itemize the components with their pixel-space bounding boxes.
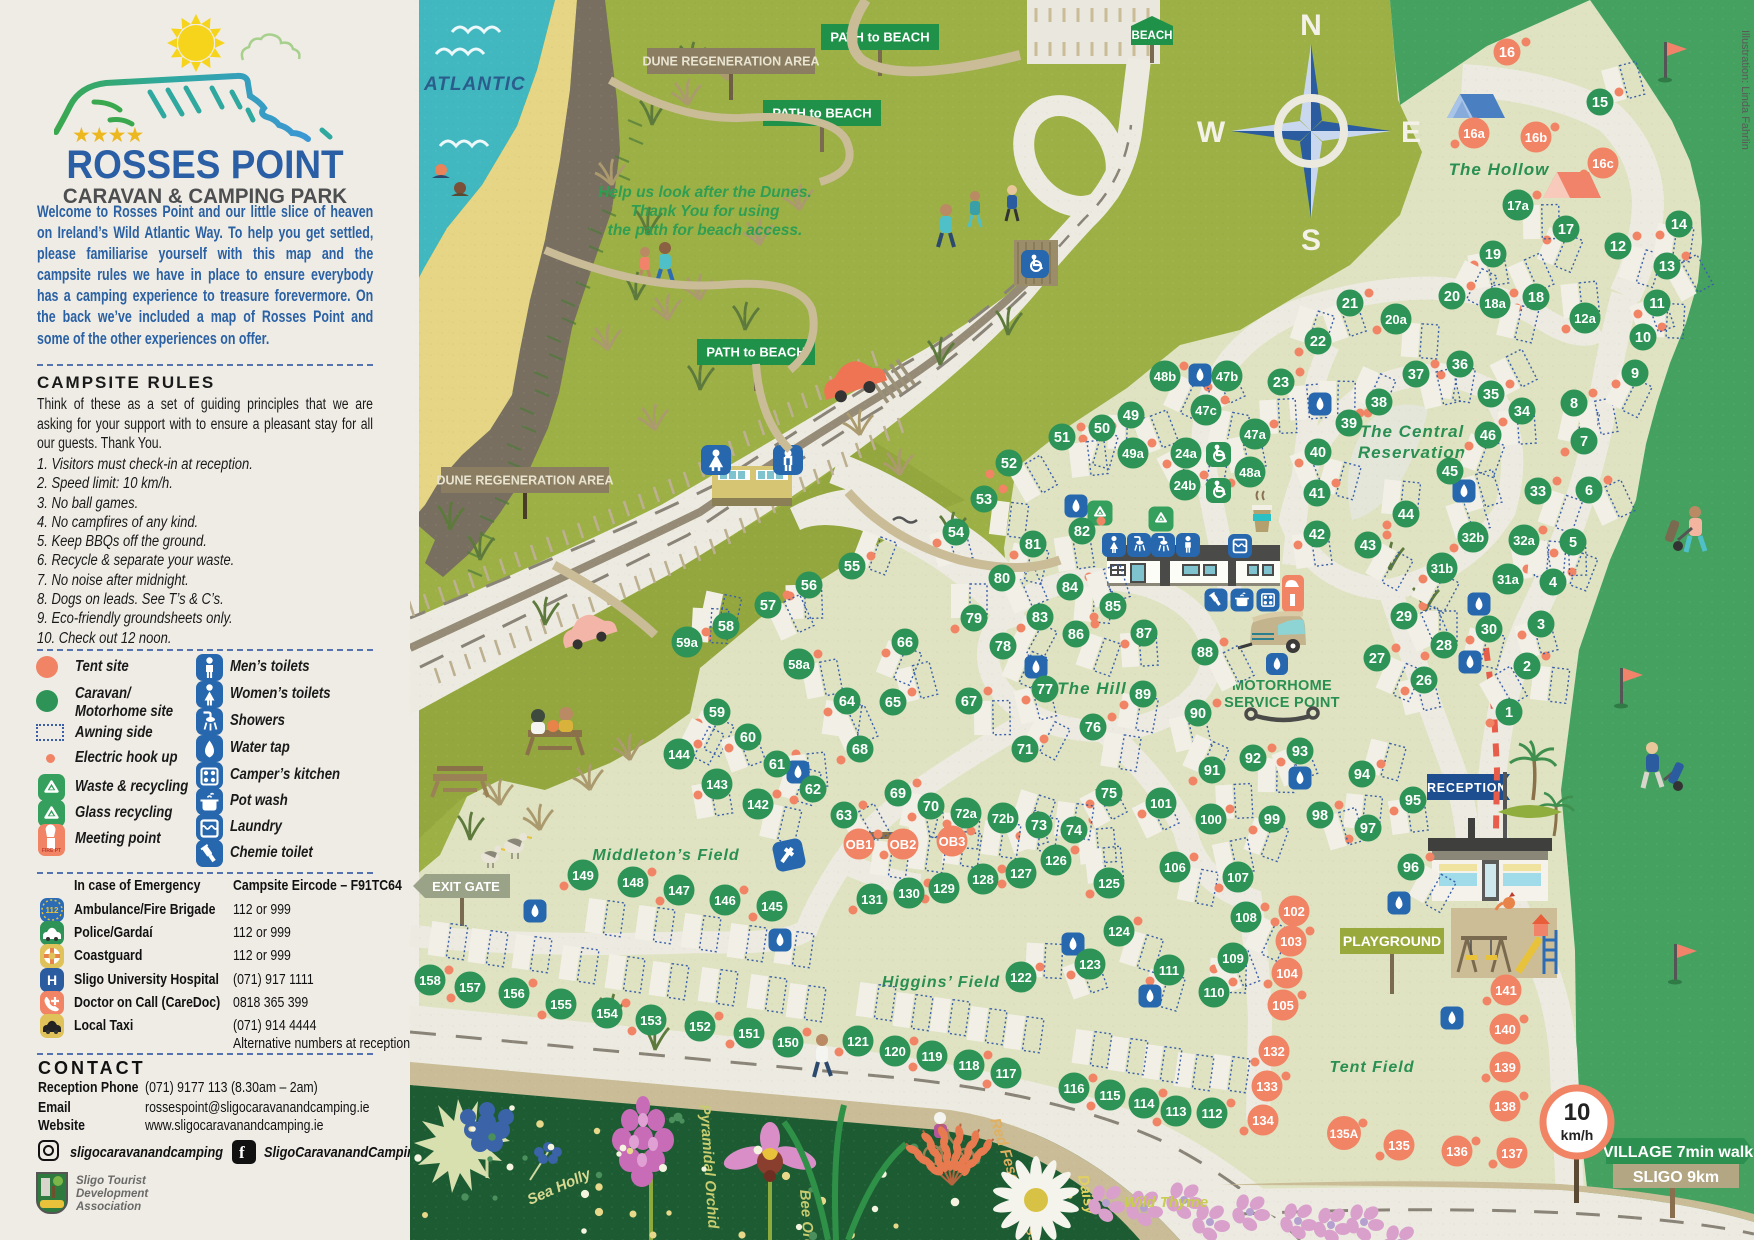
- svg-text:79: 79: [966, 611, 982, 627]
- svg-text:122: 122: [1010, 970, 1032, 985]
- svg-text:7: 7: [1580, 434, 1588, 450]
- svg-text:87: 87: [1136, 626, 1152, 642]
- svg-text:117: 117: [996, 1066, 1017, 1081]
- svg-text:107: 107: [1227, 870, 1249, 885]
- svg-text:8: 8: [1570, 396, 1578, 412]
- svg-text:47c: 47c: [1195, 403, 1217, 418]
- svg-text:17: 17: [1558, 222, 1574, 238]
- svg-text:129: 129: [933, 881, 955, 896]
- svg-text:86: 86: [1068, 627, 1084, 643]
- svg-text:157: 157: [459, 980, 481, 995]
- svg-text:71: 71: [1017, 742, 1033, 758]
- svg-text:16: 16: [1499, 45, 1515, 61]
- svg-text:95: 95: [1405, 793, 1421, 809]
- svg-text:147: 147: [668, 883, 690, 898]
- svg-text:58a: 58a: [788, 657, 810, 672]
- svg-text:12: 12: [1610, 239, 1626, 255]
- svg-text:16a: 16a: [1463, 126, 1485, 141]
- svg-text:104: 104: [1276, 966, 1298, 981]
- svg-text:32a: 32a: [1513, 533, 1535, 548]
- svg-text:32b: 32b: [1462, 530, 1484, 545]
- svg-text:151: 151: [738, 1026, 760, 1041]
- svg-text:130: 130: [898, 886, 920, 901]
- svg-text:123: 123: [1079, 957, 1101, 972]
- svg-text:61: 61: [769, 757, 785, 773]
- svg-text:59: 59: [709, 705, 725, 721]
- svg-text:11: 11: [1649, 296, 1664, 312]
- svg-text:The Hill: The Hill: [1057, 679, 1127, 698]
- svg-text:The Central: The Central: [1360, 422, 1465, 441]
- svg-text:E: E: [1401, 116, 1421, 149]
- svg-text:20: 20: [1444, 289, 1460, 305]
- svg-text:158: 158: [419, 973, 441, 988]
- svg-text:Middleton’s Field: Middleton’s Field: [592, 847, 740, 864]
- svg-text:91: 91: [1204, 763, 1220, 779]
- svg-text:13: 13: [1659, 259, 1675, 275]
- svg-text:77: 77: [1037, 682, 1053, 698]
- svg-text:18a: 18a: [1484, 296, 1506, 311]
- svg-text:22: 22: [1310, 334, 1326, 350]
- svg-text:113: 113: [1166, 1104, 1187, 1119]
- svg-text:42: 42: [1309, 527, 1325, 543]
- svg-text:140: 140: [1494, 1022, 1516, 1037]
- svg-text:PATH to BEACH: PATH to BEACH: [830, 30, 929, 45]
- svg-text:62: 62: [805, 782, 821, 798]
- svg-text:69: 69: [890, 786, 906, 802]
- svg-text:10: 10: [1564, 1099, 1591, 1126]
- svg-text:63: 63: [836, 808, 852, 824]
- svg-text:90: 90: [1190, 706, 1206, 722]
- svg-text:59a: 59a: [676, 635, 698, 650]
- svg-text:H: H: [47, 972, 57, 988]
- svg-text:103: 103: [1280, 934, 1302, 949]
- svg-text:137: 137: [1501, 1146, 1523, 1161]
- svg-text:58: 58: [718, 619, 734, 635]
- svg-text:26: 26: [1416, 673, 1432, 689]
- svg-text:74: 74: [1066, 823, 1082, 839]
- svg-text:23: 23: [1273, 375, 1289, 391]
- svg-text:80: 80: [994, 571, 1010, 587]
- svg-text:43: 43: [1360, 538, 1376, 554]
- svg-text:139: 139: [1494, 1060, 1516, 1075]
- svg-text:72b: 72b: [992, 811, 1014, 826]
- svg-text:35: 35: [1483, 387, 1499, 403]
- svg-text:153: 153: [640, 1013, 662, 1028]
- svg-text:75: 75: [1101, 786, 1117, 802]
- svg-text:SERVICE POINT: SERVICE POINT: [1224, 695, 1340, 711]
- svg-text:152: 152: [689, 1019, 711, 1034]
- svg-text:15: 15: [1592, 95, 1608, 111]
- svg-text:141: 141: [1495, 983, 1517, 998]
- svg-text:114: 114: [1134, 1096, 1156, 1111]
- svg-text:120: 120: [884, 1044, 906, 1059]
- svg-text:Tent Field: Tent Field: [1330, 1059, 1415, 1076]
- svg-text:N: N: [1300, 9, 1322, 42]
- svg-text:S: S: [1301, 224, 1321, 257]
- svg-text:111: 111: [1159, 963, 1179, 978]
- svg-text:Help us look after the Dunes.: Help us look after the Dunes.: [598, 184, 812, 201]
- svg-text:9: 9: [1631, 366, 1639, 382]
- svg-text:56: 56: [801, 578, 817, 594]
- svg-text:125: 125: [1098, 876, 1120, 891]
- svg-text:88: 88: [1197, 645, 1213, 661]
- svg-text:37: 37: [1408, 367, 1424, 383]
- svg-text:21: 21: [1342, 296, 1358, 312]
- svg-text:49a: 49a: [1122, 446, 1144, 461]
- svg-text:38: 38: [1371, 395, 1387, 411]
- svg-text:Illustration: Linda Fahrlin: Illustration: Linda Fahrlin: [1739, 30, 1751, 150]
- svg-text:131: 131: [861, 892, 883, 907]
- svg-text:108: 108: [1235, 910, 1257, 925]
- svg-text:115: 115: [1100, 1088, 1121, 1103]
- svg-text:Thank You for using: Thank You for using: [631, 203, 781, 220]
- svg-text:4: 4: [1549, 575, 1557, 591]
- svg-text:50: 50: [1094, 421, 1110, 437]
- svg-text:145: 145: [761, 899, 783, 914]
- svg-text:60: 60: [740, 730, 756, 746]
- svg-text:142: 142: [747, 797, 769, 812]
- svg-text:65: 65: [885, 695, 901, 711]
- svg-text:39: 39: [1341, 416, 1357, 432]
- svg-text:143: 143: [706, 777, 728, 792]
- svg-text:SLIGO 9km: SLIGO 9km: [1633, 1169, 1719, 1186]
- svg-text:EXIT GATE: EXIT GATE: [432, 879, 500, 894]
- svg-text:92: 92: [1245, 751, 1261, 767]
- svg-text:47b: 47b: [1216, 369, 1238, 384]
- svg-text:99: 99: [1264, 812, 1280, 828]
- svg-text:146: 146: [714, 893, 736, 908]
- svg-text:Wild Thyme: Wild Thyme: [1124, 1194, 1208, 1211]
- svg-text:93: 93: [1292, 744, 1308, 760]
- svg-text:18: 18: [1528, 290, 1544, 306]
- svg-text:121: 121: [847, 1034, 869, 1049]
- svg-text:138: 138: [1494, 1099, 1516, 1114]
- svg-text:100: 100: [1200, 812, 1222, 827]
- svg-text:17a: 17a: [1507, 198, 1529, 213]
- svg-text:70: 70: [923, 799, 939, 815]
- svg-text:31a: 31a: [1497, 572, 1519, 587]
- svg-text:BEACH: BEACH: [1132, 30, 1173, 42]
- svg-text:128: 128: [972, 872, 994, 887]
- svg-text:106: 106: [1164, 860, 1186, 875]
- svg-text:66: 66: [897, 635, 913, 651]
- svg-text:29: 29: [1396, 609, 1412, 625]
- svg-text:126: 126: [1045, 853, 1067, 868]
- svg-text:148: 148: [622, 875, 644, 890]
- svg-text:109: 109: [1222, 951, 1244, 966]
- svg-text:44: 44: [1398, 507, 1414, 523]
- svg-text:51: 51: [1054, 430, 1070, 446]
- svg-text:PATH to BEACH: PATH to BEACH: [706, 345, 805, 360]
- svg-text:The Hollow: The Hollow: [1449, 160, 1550, 179]
- svg-text:149: 149: [572, 868, 594, 883]
- svg-text:64: 64: [839, 694, 855, 710]
- svg-text:112: 112: [46, 906, 59, 915]
- svg-text:67: 67: [961, 694, 977, 710]
- svg-text:48b: 48b: [1154, 369, 1176, 384]
- svg-text:28: 28: [1436, 638, 1452, 654]
- svg-text:154: 154: [596, 1006, 618, 1021]
- svg-text:72a: 72a: [955, 806, 977, 821]
- svg-text:84: 84: [1062, 580, 1078, 596]
- svg-text:110: 110: [1204, 985, 1225, 1000]
- svg-text:45: 45: [1442, 464, 1458, 480]
- svg-text:73: 73: [1031, 818, 1047, 834]
- svg-text:OB1: OB1: [846, 837, 873, 852]
- svg-text:W: W: [1197, 116, 1226, 149]
- svg-text:Higgins’ Field: Higgins’ Field: [882, 974, 1001, 991]
- svg-text:116: 116: [1064, 1081, 1085, 1096]
- svg-text:PLAYGROUND: PLAYGROUND: [1343, 933, 1441, 949]
- svg-text:49: 49: [1123, 408, 1139, 424]
- svg-text:85: 85: [1105, 599, 1121, 615]
- svg-text:km/h: km/h: [1561, 1127, 1594, 1143]
- svg-text:OB3: OB3: [939, 834, 966, 849]
- svg-text:78: 78: [995, 639, 1011, 655]
- svg-text:101: 101: [1150, 796, 1172, 811]
- svg-text:16b: 16b: [1525, 130, 1547, 145]
- svg-text:127: 127: [1010, 866, 1032, 881]
- svg-text:20a: 20a: [1385, 312, 1407, 327]
- svg-text:1: 1: [1505, 705, 1513, 721]
- svg-text:6: 6: [1585, 483, 1593, 499]
- svg-text:155: 155: [550, 997, 572, 1012]
- svg-text:14: 14: [1671, 217, 1687, 233]
- svg-text:124: 124: [1108, 924, 1130, 939]
- svg-text:2: 2: [1523, 659, 1531, 675]
- svg-text:24a: 24a: [1175, 446, 1197, 461]
- svg-text:134: 134: [1252, 1113, 1274, 1128]
- svg-text:52: 52: [1001, 456, 1017, 472]
- svg-text:119: 119: [922, 1049, 943, 1064]
- svg-text:102: 102: [1283, 904, 1305, 919]
- svg-text:5: 5: [1569, 535, 1577, 551]
- svg-text:156: 156: [503, 986, 525, 1001]
- svg-text:41: 41: [1309, 486, 1325, 502]
- svg-text:81: 81: [1025, 537, 1041, 553]
- svg-text:16c: 16c: [1592, 156, 1614, 171]
- svg-text:53: 53: [976, 492, 992, 508]
- svg-text:132: 132: [1263, 1044, 1285, 1059]
- svg-text:68: 68: [852, 742, 868, 758]
- svg-text:40: 40: [1310, 445, 1326, 461]
- svg-text:144: 144: [668, 747, 690, 762]
- svg-text:47a: 47a: [1244, 427, 1266, 442]
- svg-text:DUNE REGENERATION AREA: DUNE REGENERATION AREA: [436, 474, 613, 488]
- svg-text:98: 98: [1312, 808, 1328, 824]
- svg-text:3: 3: [1537, 617, 1545, 633]
- svg-text:FIRE PT: FIRE PT: [42, 848, 61, 854]
- svg-text:36: 36: [1452, 357, 1468, 373]
- svg-text:57: 57: [760, 598, 776, 614]
- svg-text:46: 46: [1480, 428, 1496, 444]
- svg-text:89: 89: [1135, 687, 1151, 703]
- svg-text:12a: 12a: [1574, 311, 1596, 326]
- svg-text:33: 33: [1530, 484, 1546, 500]
- svg-text:54: 54: [948, 525, 964, 541]
- svg-text:82: 82: [1074, 524, 1090, 540]
- svg-text:30: 30: [1481, 622, 1497, 638]
- svg-text:105: 105: [1272, 998, 1294, 1013]
- svg-text:the path for beach access.: the path for beach access.: [608, 222, 803, 239]
- svg-text:34: 34: [1514, 404, 1530, 420]
- svg-text:118: 118: [959, 1058, 980, 1073]
- svg-text:133: 133: [1256, 1079, 1278, 1094]
- svg-text:DUNE REGENERATION AREA: DUNE REGENERATION AREA: [642, 55, 819, 69]
- svg-text:27: 27: [1369, 651, 1385, 667]
- svg-text:96: 96: [1403, 860, 1419, 876]
- svg-text:10: 10: [1635, 330, 1651, 346]
- svg-text:135A: 135A: [1330, 1127, 1359, 1141]
- svg-text:VILLAGE 7min walk: VILLAGE 7min walk: [1603, 1144, 1753, 1161]
- svg-text:31b: 31b: [1431, 561, 1453, 576]
- svg-text:83: 83: [1032, 610, 1048, 626]
- svg-text:24b: 24b: [1174, 478, 1196, 493]
- svg-text:55: 55: [844, 559, 860, 575]
- svg-text:97: 97: [1360, 821, 1376, 837]
- svg-text:19: 19: [1485, 247, 1501, 263]
- svg-text:OB2: OB2: [890, 837, 917, 852]
- svg-text:MOTORHOME: MOTORHOME: [1232, 678, 1332, 694]
- svg-text:150: 150: [777, 1035, 799, 1050]
- svg-text:76: 76: [1085, 720, 1101, 736]
- svg-text:94: 94: [1354, 767, 1370, 783]
- svg-text:135: 135: [1388, 1138, 1410, 1153]
- svg-text:48a: 48a: [1239, 465, 1261, 480]
- svg-text:112: 112: [1202, 1106, 1223, 1121]
- svg-text:136: 136: [1446, 1144, 1468, 1159]
